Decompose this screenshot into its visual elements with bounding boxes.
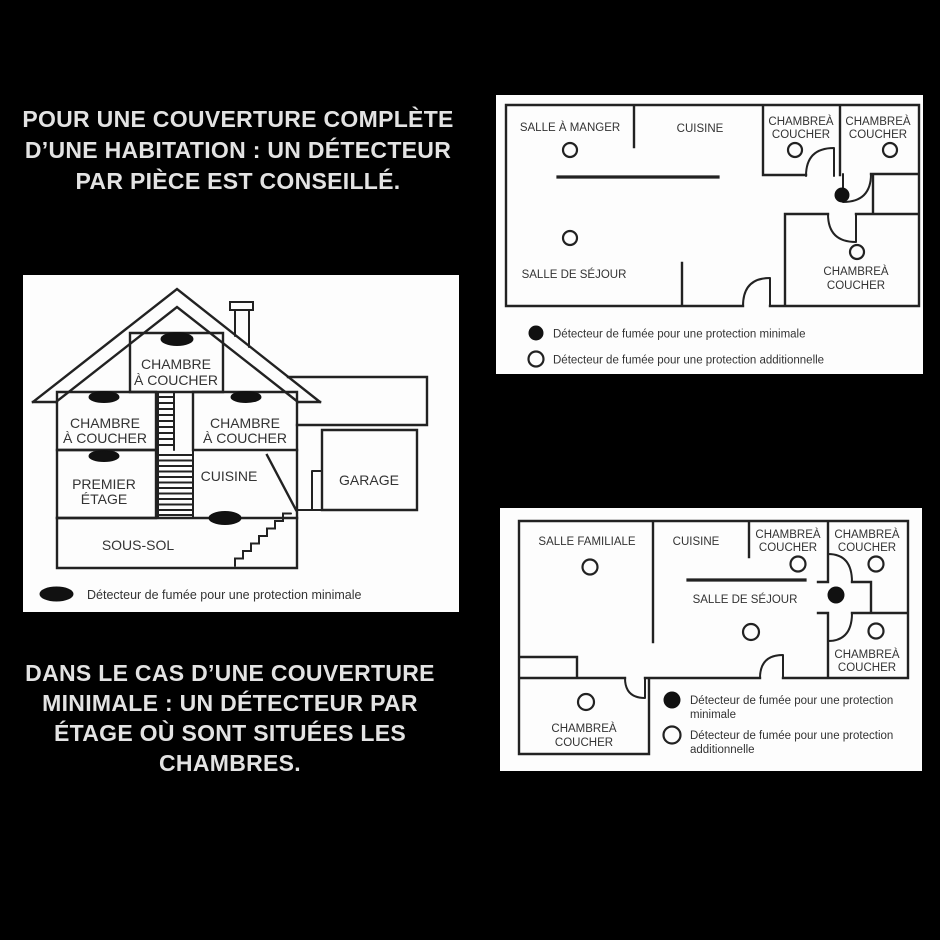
smoke-detector-additional-icon — [563, 143, 577, 157]
floor-plan-bottom-svg: SALLE FAMILIALE CUISINE CHAMBREÀ COUCHER… — [500, 508, 922, 771]
smoke-detector-additional-icon — [788, 143, 802, 157]
headline-line: D’UNE HABITATION : UN DÉTECTEUR — [18, 135, 458, 166]
room-label-bedroom: À COUCHER — [203, 430, 287, 446]
smoke-detector-minimal-icon — [835, 188, 850, 203]
smoke-detector-additional-icon — [869, 557, 884, 572]
room-label-bedroom: CHAMBREÀ — [551, 722, 617, 735]
headline-line: MINIMALE : UN DÉTECTEUR PAR — [20, 688, 440, 718]
garage-outline — [322, 430, 417, 510]
legend-minimal-label: Détecteur de fumée pour une protection — [690, 695, 893, 707]
room-label-bedroom: COUCHER — [759, 542, 817, 554]
garage-doorway — [297, 471, 322, 510]
headline-minimal-coverage: DANS LE CAS D’UNE COUVERTURE MINIMALE : … — [20, 658, 440, 778]
legend-minimal-label: Détecteur de fumée pour une protection m… — [553, 329, 806, 341]
room-label-living: SALLE DE SÉJOUR — [693, 593, 798, 606]
door-icon — [760, 655, 783, 678]
room-label-family: SALLE FAMILIALE — [538, 536, 635, 548]
legend-minimal-label: minimale — [690, 709, 736, 721]
room-label-bedroom: CHAMBRE — [210, 415, 280, 431]
basement-outline — [57, 518, 297, 568]
smoke-detector-additional-icon — [869, 624, 884, 639]
door-icon — [828, 214, 856, 242]
smoke-detector-minimal-icon — [231, 392, 261, 403]
room-label-dining: SALLE À MANGER — [520, 121, 620, 134]
legend-minimal-icon — [529, 326, 544, 341]
room-label-living: SALLE DE SÉJOUR — [522, 268, 627, 281]
room-label-first-floor: PREMIER — [72, 476, 136, 492]
legend-minimal-icon — [40, 587, 73, 601]
room-label-bedroom: CHAMBREÀ — [823, 265, 889, 278]
room-label-bedroom: COUCHER — [838, 662, 896, 674]
room-label-bedroom: À COUCHER — [134, 372, 218, 388]
headline-line: ÉTAGE OÙ SONT SITUÉES LES — [20, 718, 440, 748]
legend-additional-label: Détecteur de fumée pour une protection a… — [553, 355, 824, 367]
smoke-detector-minimal-icon — [161, 333, 193, 346]
legend-minimal-label: Détecteur de fumée pour une protection m… — [87, 588, 362, 602]
door-icon — [806, 148, 834, 176]
door-icon — [828, 613, 852, 641]
smoke-detector-additional-icon — [578, 694, 594, 710]
floor-plan-top-panel: SALLE À MANGER CUISINE CHAMBREÀ COUCHER … — [496, 95, 923, 374]
smoke-detector-additional-icon — [563, 231, 577, 245]
door-icon — [743, 278, 770, 306]
room-label-first-floor: ÉTAGE — [81, 491, 127, 507]
upper-staircase — [158, 392, 174, 450]
floor-plan-top-svg: SALLE À MANGER CUISINE CHAMBREÀ COUCHER … — [496, 95, 923, 374]
headline-line: CHAMBRES. — [20, 748, 440, 778]
smoke-detector-minimal-icon — [89, 392, 119, 403]
room-label-bedroom: COUCHER — [827, 280, 885, 292]
smoke-detector-minimal-icon — [828, 587, 845, 604]
room-label-bedroom: CHAMBRE — [70, 415, 140, 431]
legend-additional-label: additionnelle — [690, 744, 755, 756]
room-label-bedroom: CHAMBREÀ — [845, 115, 911, 128]
room-label-bedroom: COUCHER — [838, 542, 896, 554]
legend-minimal-icon — [664, 692, 681, 709]
headline-complete-coverage: POUR UNE COUVERTURE COMPLÈTE D’UNE HABIT… — [18, 104, 458, 197]
room-label-bedroom: COUCHER — [555, 737, 613, 749]
room-label-bedroom: CHAMBREÀ — [834, 528, 900, 541]
room-label-kitchen: CUISINE — [677, 123, 724, 135]
smoke-detector-additional-icon — [791, 557, 806, 572]
legend-additional-icon — [664, 727, 681, 744]
house-cross-section-panel: CHAMBRE À COUCHER CHAMBRE À COUCHER CHAM… — [23, 275, 459, 612]
smoke-detector-minimal-icon — [209, 512, 241, 525]
room-label-bedroom: CHAMBREÀ — [768, 115, 834, 128]
room-label-basement: SOUS-SOL — [102, 537, 175, 553]
main-staircase — [158, 450, 193, 518]
legend-additional-icon — [529, 352, 544, 367]
room-label-bedroom: CHAMBREÀ — [755, 528, 821, 541]
room-label-kitchen: CUISINE — [673, 536, 720, 548]
smoke-detector-additional-icon — [850, 245, 864, 259]
smoke-detector-additional-icon — [883, 143, 897, 157]
basement-stairs — [235, 514, 291, 567]
door-icon — [625, 678, 645, 698]
headline-line: DANS LE CAS D’UNE COUVERTURE — [20, 658, 440, 688]
door-icon — [828, 554, 852, 582]
legend-additional-label: Détecteur de fumée pour une protection — [690, 730, 893, 742]
room-label-bedroom: CHAMBRE — [141, 356, 211, 372]
smoke-detector-minimal-icon — [89, 451, 119, 462]
headline-line: PAR PIÈCE EST CONSEILLÉ. — [18, 166, 458, 197]
room-label-bedroom: À COUCHER — [63, 430, 147, 446]
house-cross-section-svg: CHAMBRE À COUCHER CHAMBRE À COUCHER CHAM… — [23, 275, 459, 612]
room-label-bedroom: CHAMBREÀ — [834, 648, 900, 661]
headline-line: POUR UNE COUVERTURE COMPLÈTE — [18, 104, 458, 135]
smoke-detector-additional-icon — [743, 624, 759, 640]
room-label-bedroom: COUCHER — [849, 129, 907, 141]
room-label-garage: GARAGE — [339, 472, 399, 488]
room-label-bedroom: COUCHER — [772, 129, 830, 141]
room-label-kitchen: CUISINE — [201, 468, 258, 484]
smoke-detector-additional-icon — [583, 560, 598, 575]
floor-plan-bottom-panel: SALLE FAMILIALE CUISINE CHAMBREÀ COUCHER… — [500, 508, 922, 771]
